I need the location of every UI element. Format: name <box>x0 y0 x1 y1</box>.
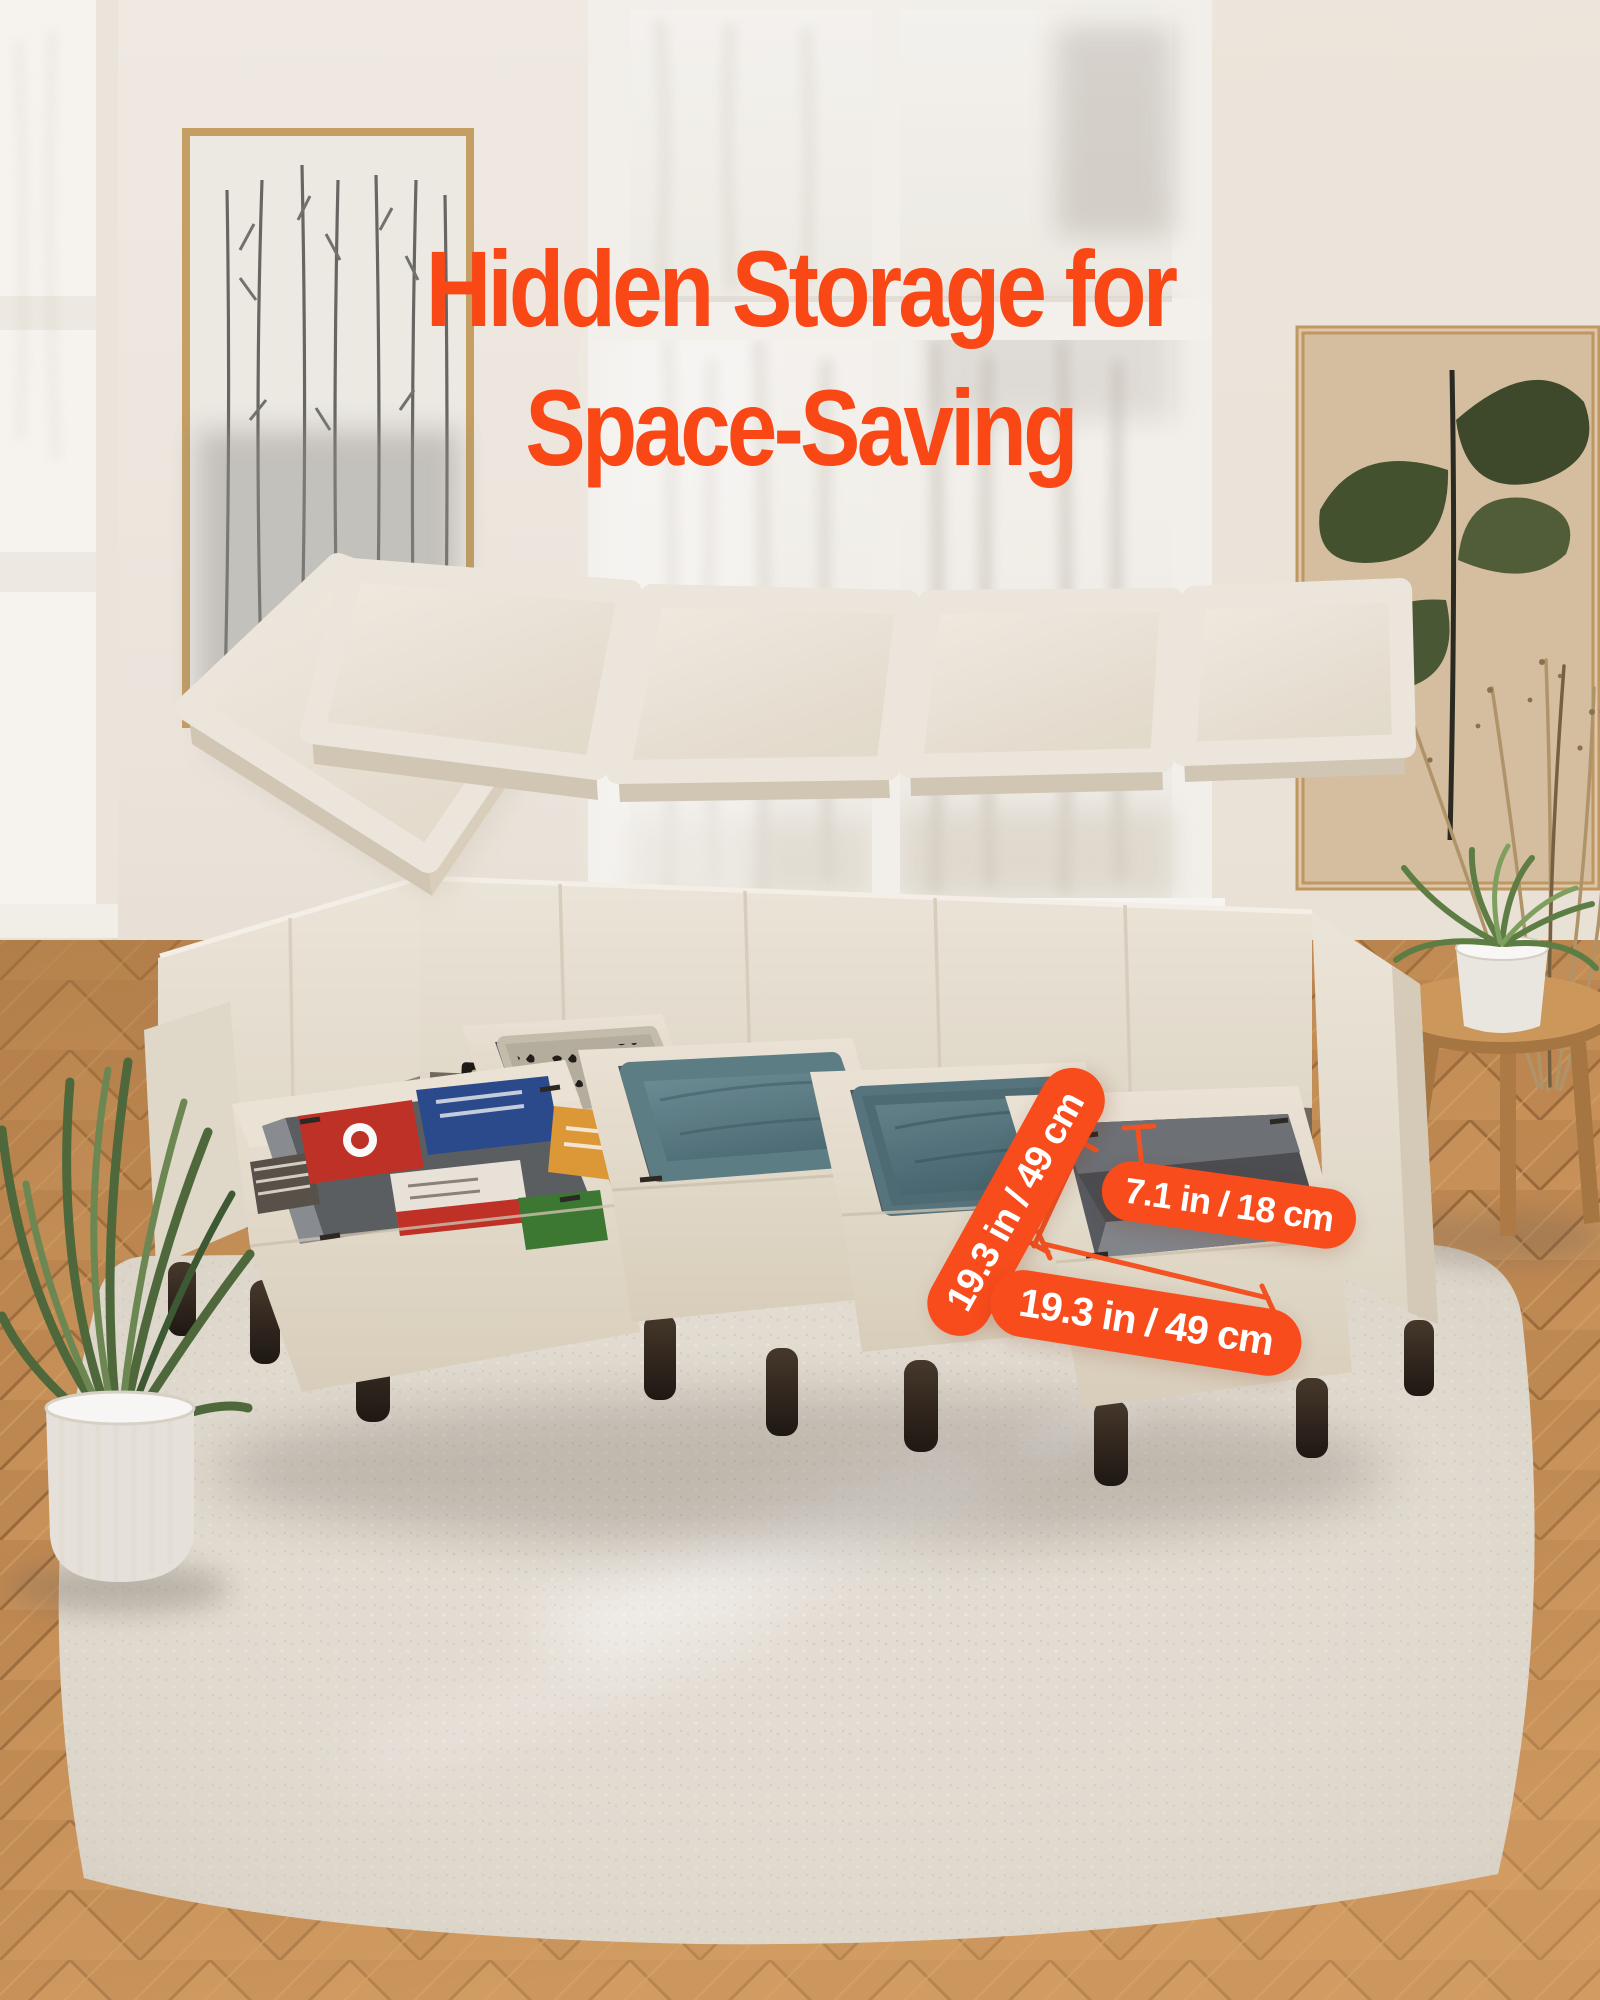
headline: Hidden Storage for Space-Saving <box>128 220 1472 496</box>
headline-line-1: Hidden Storage for <box>128 220 1472 358</box>
product-marketing-image: Hidden Storage for Space-Saving 19.3 in … <box>0 0 1600 2000</box>
headline-line-2: Space-Saving <box>128 359 1472 497</box>
